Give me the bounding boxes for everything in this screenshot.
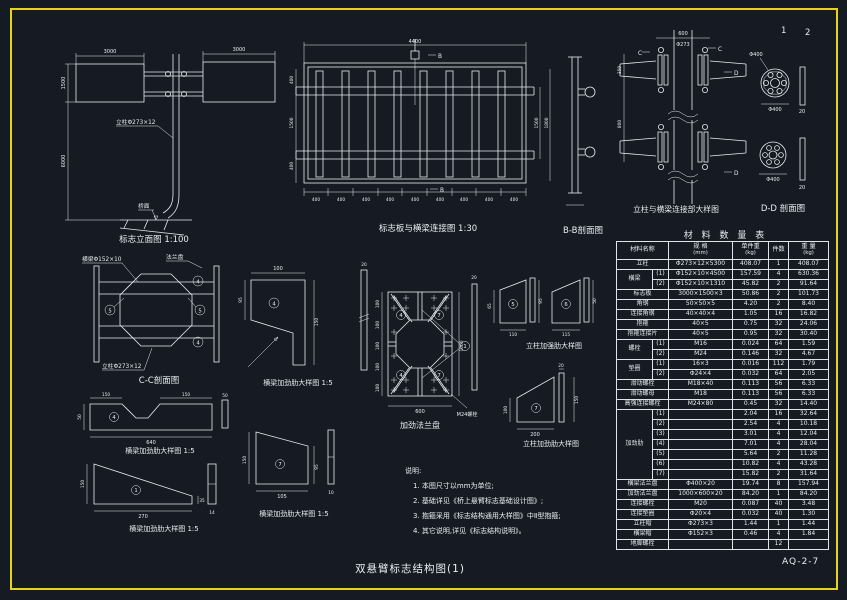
flange-plate-drawing: 20 4 7 4 7 1 10 bbox=[355, 258, 490, 433]
table-cell: 1000×600×20 bbox=[669, 490, 733, 500]
table-cell: 1.30 bbox=[789, 510, 829, 520]
table-row: 垫圈(1)16×30.0161121.79 bbox=[617, 360, 829, 370]
svg-text:150: 150 bbox=[314, 318, 320, 326]
table-cell: 157.94 bbox=[789, 480, 829, 490]
beam-rib-tri-caption: 横梁加劲肋大样图 1:5 bbox=[129, 524, 199, 533]
svg-text:600: 600 bbox=[678, 31, 688, 37]
svg-text:100: 100 bbox=[375, 384, 381, 392]
svg-text:Φ400: Φ400 bbox=[749, 52, 762, 58]
panel-beam-drawing: B B 4400 400 1500 400 1500 1800 400 400 … bbox=[288, 35, 558, 245]
svg-text:35: 35 bbox=[199, 498, 205, 504]
table-cell: 32.64 bbox=[789, 410, 829, 420]
table-cell: 630.36 bbox=[789, 270, 829, 280]
column-beam-section-marks: C C D D bbox=[638, 47, 739, 177]
flange-plate-caption: 加劲法兰盘 bbox=[400, 420, 440, 430]
table-cell: 2 bbox=[769, 470, 789, 480]
svg-text:20: 20 bbox=[799, 109, 805, 115]
table-cell: 12 bbox=[769, 540, 789, 550]
table-cell: 3.01 bbox=[733, 430, 769, 440]
table-row: 滑动螺母M180.113566.33 bbox=[617, 390, 829, 400]
section-cc-caption: C-C剖面图 bbox=[139, 375, 179, 386]
table-row: 横梁法兰盘Φ400×2019.748157.94 bbox=[617, 480, 829, 490]
elevation-dimensions: 3000 3000 1500 6000 bbox=[61, 47, 275, 220]
svg-text:20: 20 bbox=[558, 363, 564, 369]
bolt-label: M24螺栓 bbox=[457, 411, 478, 418]
table-cell: Φ152×10×1310 bbox=[669, 280, 733, 290]
table-cell: 40×5 bbox=[669, 320, 733, 330]
elevation-caption: 标志立面图 1:100 bbox=[119, 234, 189, 245]
table-cell: 6.33 bbox=[789, 380, 829, 390]
table-cell: 32 bbox=[769, 330, 789, 340]
svg-text:10: 10 bbox=[328, 490, 334, 496]
col-material-name: 材料名称 bbox=[617, 242, 669, 260]
elevation-drawing: 3000 3000 1500 6000 立柱Φ273×12 桥面 标志立面图 1… bbox=[58, 42, 293, 252]
svg-text:350: 350 bbox=[617, 66, 623, 74]
table-row: 连接角钢40×40×41.051616.82 bbox=[617, 310, 829, 320]
table-cell: 加劲法兰盘 bbox=[617, 490, 669, 500]
svg-text:Φ400: Φ400 bbox=[768, 107, 781, 113]
bridge-deck-label: 桥面 bbox=[138, 202, 150, 210]
svg-text:20: 20 bbox=[361, 262, 367, 268]
table-cell: 10.18 bbox=[789, 420, 829, 430]
table-cell bbox=[669, 450, 733, 460]
svg-text:400: 400 bbox=[289, 162, 295, 170]
dim-pole-height: 6000 bbox=[61, 155, 67, 168]
svg-text:50: 50 bbox=[592, 298, 598, 304]
beam-rib-trap-drawing: 7 10 150 95 105 横梁加劲肋大样图 1:5 bbox=[228, 424, 358, 524]
beam-rib-a-dimensions: 100 95 150 bbox=[238, 266, 320, 365]
table-cell: (1) bbox=[653, 340, 669, 350]
table-cell: 横梁帽 bbox=[617, 530, 669, 540]
notes-title: 说明: bbox=[405, 464, 600, 479]
table-cell: 0.95 bbox=[733, 330, 769, 340]
table-cell: 0.146 bbox=[733, 350, 769, 360]
table-cell: 立柱帽 bbox=[617, 520, 669, 530]
table-row: 角钢50×50×54.2028.40 bbox=[617, 300, 829, 310]
table-cell: 16×3 bbox=[669, 360, 733, 370]
svg-text:4: 4 bbox=[272, 301, 276, 307]
table-cell: 抱箍连接片 bbox=[617, 330, 669, 340]
col-unit-weight: 单件重(kg) bbox=[733, 242, 769, 260]
table-cell: 1.05 bbox=[733, 310, 769, 320]
table-row: 连接螺栓M200.087403.48 bbox=[617, 500, 829, 510]
beam-rib-notched-geometry: 4 50 bbox=[90, 393, 228, 430]
table-cell: 3000×1500×3 bbox=[669, 290, 733, 300]
table-cell: (1) bbox=[653, 410, 669, 420]
pole-spec-label: 立柱Φ273×12 bbox=[116, 118, 156, 126]
section-d-mark-upper: D bbox=[734, 71, 739, 77]
svg-text:5: 5 bbox=[511, 302, 514, 308]
svg-text:100: 100 bbox=[503, 406, 509, 414]
col-rib-geometry: 20 7 bbox=[517, 363, 564, 422]
table-cell: 连接垫圈 bbox=[617, 510, 669, 520]
table-cell: 12.04 bbox=[789, 430, 829, 440]
table-cell: 横梁法兰盘 bbox=[617, 480, 669, 490]
svg-text:50: 50 bbox=[77, 414, 83, 420]
panel-beam-dimensions: 4400 400 1500 400 1500 1800 400 400 400 … bbox=[289, 39, 550, 203]
table-cell: 4 bbox=[769, 440, 789, 450]
section-bb-drawing: B-B剖面图 bbox=[552, 45, 617, 245]
dim-panel-right: 3000 bbox=[233, 47, 246, 53]
svg-text:50: 50 bbox=[222, 393, 228, 399]
table-cell: (2) bbox=[653, 370, 669, 380]
svg-text:100: 100 bbox=[375, 363, 381, 371]
table-cell: 4 bbox=[769, 430, 789, 440]
svg-text:800: 800 bbox=[617, 120, 623, 128]
table-cell: 4.20 bbox=[733, 300, 769, 310]
svg-text:400: 400 bbox=[460, 197, 468, 203]
table-cell bbox=[669, 410, 733, 420]
svg-text:105: 105 bbox=[277, 494, 287, 500]
section-dd-caption: D-D 剖面图 bbox=[761, 203, 805, 214]
table-cell: 31.64 bbox=[789, 470, 829, 480]
table-cell: 50.86 bbox=[733, 290, 769, 300]
beam-rib-notched-dimensions: 150 150 50 640 bbox=[77, 392, 212, 446]
table-cell: (2) bbox=[653, 280, 669, 290]
table-cell: 45.82 bbox=[733, 280, 769, 290]
svg-text:1500: 1500 bbox=[289, 117, 295, 128]
table-cell: 立柱 bbox=[617, 260, 669, 270]
table-cell: 1 bbox=[769, 490, 789, 500]
table-cell: Φ400×20 bbox=[669, 480, 733, 490]
table-cell: 16 bbox=[769, 410, 789, 420]
section-b-mark-top: B bbox=[438, 54, 442, 60]
table-cell: 0.016 bbox=[733, 360, 769, 370]
table-cell bbox=[733, 540, 769, 550]
beam-rib-tri-dimensions: 150 270 35 bbox=[80, 464, 205, 520]
svg-text:20: 20 bbox=[471, 275, 477, 281]
table-row: 立柱Φ273×12×5300408.071408.07 bbox=[617, 260, 829, 270]
beam-rib-a-caption: 横梁加劲肋大样图 1:5 bbox=[263, 378, 333, 387]
table-cell: 84.20 bbox=[789, 490, 829, 500]
svg-text:4: 4 bbox=[399, 313, 403, 319]
table-row: 抱箍连接片40×50.953230.40 bbox=[617, 330, 829, 340]
svg-text:7: 7 bbox=[534, 406, 537, 412]
table-cell: 标志板 bbox=[617, 290, 669, 300]
table-row: 抱箍40×50.753224.06 bbox=[617, 320, 829, 330]
table-cell: 408.07 bbox=[733, 260, 769, 270]
table-cell bbox=[789, 540, 829, 550]
svg-text:95: 95 bbox=[538, 298, 544, 304]
table-cell: 2.54 bbox=[733, 420, 769, 430]
col-spec: 规 格(mm) bbox=[669, 242, 733, 260]
table-cell: 15.82 bbox=[733, 470, 769, 480]
svg-text:7: 7 bbox=[278, 462, 281, 468]
table-cell: 地脚螺栓 bbox=[617, 540, 669, 550]
beam-spec-label: 横梁Φ152×10 bbox=[82, 255, 122, 263]
section-dd-geometry bbox=[760, 67, 805, 180]
table-row: 横梁(1)Φ152×10×4500157.594630.36 bbox=[617, 270, 829, 280]
svg-text:1000: 1000 bbox=[459, 340, 465, 351]
table-cell: 14.40 bbox=[789, 400, 829, 410]
table-cell: 19.74 bbox=[733, 480, 769, 490]
table-cell: 垫圈 bbox=[617, 360, 653, 380]
table-row: 高强连接螺栓M24×800.453214.40 bbox=[617, 400, 829, 410]
table-row: 加劲肋(1)2.041632.64 bbox=[617, 410, 829, 420]
col-rib6-geometry: 6 50 115 bbox=[552, 278, 598, 338]
svg-text:5: 5 bbox=[198, 308, 201, 314]
svg-text:400: 400 bbox=[362, 197, 370, 203]
svg-text:400: 400 bbox=[386, 197, 394, 203]
table-cell: (1) bbox=[653, 270, 669, 280]
svg-text:110: 110 bbox=[509, 332, 517, 338]
table-cell: M20 bbox=[669, 500, 733, 510]
svg-text:1500: 1500 bbox=[534, 117, 540, 128]
table-cell: 32 bbox=[769, 320, 789, 330]
svg-text:400: 400 bbox=[411, 197, 419, 203]
table-cell: 2.05 bbox=[789, 370, 829, 380]
table-cell: 0.46 bbox=[733, 530, 769, 540]
table-row: 连接垫圈Φ20×40.032401.30 bbox=[617, 510, 829, 520]
table-cell: 4 bbox=[769, 270, 789, 280]
elevation-geometry bbox=[76, 54, 275, 235]
table-cell: Φ152×10×4500 bbox=[669, 270, 733, 280]
svg-text:Φ400: Φ400 bbox=[766, 177, 779, 183]
table-row: 标志板3000×1500×350.862101.73 bbox=[617, 290, 829, 300]
col-rib-dimensions: 100 200 150 bbox=[503, 377, 580, 438]
svg-text:115: 115 bbox=[562, 332, 570, 338]
table-cell: 2.04 bbox=[733, 410, 769, 420]
panel-beam-section-marks: B B bbox=[428, 54, 444, 194]
note-item-1: 1. 本图尺寸以mm为单位; bbox=[405, 479, 600, 494]
table-row: 立柱帽Φ273×31.4411.44 bbox=[617, 520, 829, 530]
table-cell: (3) bbox=[653, 430, 669, 440]
table-cell: 2 bbox=[769, 450, 789, 460]
table-cell: 5.64 bbox=[733, 450, 769, 460]
column-beam-caption: 立柱与横梁连接部大样图 bbox=[633, 204, 719, 214]
col-rib-drawing: 20 7 100 200 150 立柱加劲肋大样图 bbox=[492, 358, 622, 450]
table-cell: 112 bbox=[769, 360, 789, 370]
beam-rib-trap-caption: 横梁加劲肋大样图 1:5 bbox=[259, 509, 329, 518]
svg-text:7: 7 bbox=[437, 313, 440, 319]
table-cell: 408.07 bbox=[789, 260, 829, 270]
table-cell: 4 bbox=[769, 460, 789, 470]
table-cell: 16.82 bbox=[789, 310, 829, 320]
table-cell: 8 bbox=[769, 480, 789, 490]
svg-text:7: 7 bbox=[437, 373, 440, 379]
table-cell: 1.79 bbox=[789, 360, 829, 370]
table-cell: 56 bbox=[769, 390, 789, 400]
section-cc-drawing: 4 5 5 4 横梁Φ152×10 法兰盘 立柱Φ273×12 C-C剖面图 bbox=[80, 252, 240, 392]
dim-panel-left: 3000 bbox=[104, 49, 117, 55]
table-cell: (7) bbox=[653, 470, 669, 480]
table-cell: 32 bbox=[769, 350, 789, 360]
table-cell: 28.04 bbox=[789, 440, 829, 450]
col-rib-strong-caption: 立柱加强肋大样图 bbox=[526, 341, 582, 350]
table-cell: Φ20×4 bbox=[669, 510, 733, 520]
table-cell: 连接螺栓 bbox=[617, 500, 669, 510]
table-header-row: 材料名称 规 格(mm) 单件重(kg) 件数 重 量(kg) bbox=[617, 242, 829, 260]
svg-text:200: 200 bbox=[530, 432, 540, 438]
svg-text:4: 4 bbox=[112, 415, 116, 421]
table-cell: 连接角钢 bbox=[617, 310, 669, 320]
beam-rib-trap-geometry: 7 10 bbox=[256, 430, 334, 496]
svg-text:150: 150 bbox=[80, 480, 86, 488]
table-cell: 0.113 bbox=[733, 380, 769, 390]
table-cell: 50×50×5 bbox=[669, 300, 733, 310]
svg-text:400: 400 bbox=[436, 197, 444, 203]
table-cell: 84.20 bbox=[733, 490, 769, 500]
section-b-mark-bottom: B bbox=[440, 188, 444, 194]
svg-text:Φ273: Φ273 bbox=[676, 42, 689, 48]
column-beam-drawing: C C D D 600 Φ273 350 800 立柱与横梁连接部大样图 bbox=[612, 22, 752, 222]
table-cell: 32 bbox=[769, 400, 789, 410]
table-cell: M24×80 bbox=[669, 400, 733, 410]
table-cell: M18 bbox=[669, 390, 733, 400]
svg-text:4: 4 bbox=[196, 340, 200, 346]
svg-text:400: 400 bbox=[485, 197, 493, 203]
table-cell: M16 bbox=[669, 340, 733, 350]
notes-block: 说明: 1. 本图尺寸以mm为单位; 2. 基础详见《桥上悬臂标志基础设计图》;… bbox=[405, 464, 600, 539]
table-cell: 抱箍 bbox=[617, 320, 669, 330]
svg-text:20: 20 bbox=[799, 185, 805, 191]
table-cell: 64 bbox=[769, 370, 789, 380]
table-cell: 0.087 bbox=[733, 500, 769, 510]
table-cell: 16 bbox=[769, 310, 789, 320]
table-cell: (4) bbox=[653, 440, 669, 450]
svg-text:5: 5 bbox=[108, 308, 111, 314]
table-cell: 40×5 bbox=[669, 330, 733, 340]
table-cell: 0.75 bbox=[733, 320, 769, 330]
beam-rib-tri-geometry: 1 14 bbox=[94, 464, 216, 516]
table-row: 加劲法兰盘1000×600×2084.20184.20 bbox=[617, 490, 829, 500]
elevation-labels: 立柱Φ273×12 桥面 bbox=[116, 118, 173, 220]
table-cell: (5) bbox=[653, 450, 669, 460]
section-dd-drawing: Φ400 Φ400 Φ400 20 20 D-D 剖面图 bbox=[748, 28, 836, 223]
beam-rib-a-geometry: 4 bbox=[248, 280, 305, 367]
note-item-3: 3. 抱箍采用《标志结构通用大样图》中Ⅱ型抱箍; bbox=[405, 509, 600, 524]
section-dd-dimensions: Φ400 Φ400 Φ400 20 20 bbox=[749, 52, 805, 191]
table-cell: Φ273×12×5300 bbox=[669, 260, 733, 270]
pole-spec-label-cc: 立柱Φ273×12 bbox=[102, 362, 142, 370]
table-row: 螺栓(1)M160.024641.59 bbox=[617, 340, 829, 350]
svg-text:1800: 1800 bbox=[544, 117, 550, 128]
table-cell: 0.113 bbox=[733, 390, 769, 400]
table-cell: 加劲肋 bbox=[617, 410, 653, 480]
section-bb-caption: B-B剖面图 bbox=[563, 225, 603, 236]
svg-text:6: 6 bbox=[564, 302, 568, 308]
table-cell bbox=[669, 430, 733, 440]
dim-total-width: 4400 bbox=[409, 39, 422, 45]
table-cell: 30.40 bbox=[789, 330, 829, 340]
col-rib5-geometry: 5 65 95 110 bbox=[487, 278, 544, 338]
svg-text:14: 14 bbox=[209, 510, 215, 516]
col-quantity: 件数 bbox=[769, 242, 789, 260]
table-cell: 43.28 bbox=[789, 460, 829, 470]
table-cell: 8.40 bbox=[789, 300, 829, 310]
table-cell: 1.59 bbox=[789, 340, 829, 350]
table-cell: 1.84 bbox=[789, 530, 829, 540]
table-cell bbox=[669, 470, 733, 480]
cad-sheet: 1 2 3000 3000 1500 6000 bbox=[0, 0, 847, 600]
section-c-mark-right: C bbox=[718, 47, 722, 53]
table-row: 地脚螺栓12 bbox=[617, 540, 829, 550]
svg-text:150: 150 bbox=[574, 396, 580, 404]
table-cell: 64 bbox=[769, 340, 789, 350]
svg-text:95: 95 bbox=[238, 297, 244, 303]
table-cell: 6.33 bbox=[789, 390, 829, 400]
table-cell: (2) bbox=[653, 420, 669, 430]
flange-plate-dimensions: 100 100 100 100 100 600 1000 20 M24螺栓 bbox=[375, 275, 477, 418]
beam-rib-a-drawing: 4 100 95 150 横梁加劲肋大样图 1:5 bbox=[238, 255, 348, 395]
svg-text:400: 400 bbox=[289, 76, 295, 84]
table-cell: 0.032 bbox=[733, 510, 769, 520]
material-table-title: 材 料 数 量 表 bbox=[616, 228, 835, 241]
table-row: 横梁帽Φ152×30.4641.84 bbox=[617, 530, 829, 540]
section-c-mark-left: C bbox=[638, 51, 642, 57]
sheet-title: 双悬臂标志结构图(1) bbox=[300, 561, 520, 576]
table-cell: (2) bbox=[653, 350, 669, 360]
table-cell: 56 bbox=[769, 380, 789, 390]
table-cell: 101.73 bbox=[789, 290, 829, 300]
svg-text:400: 400 bbox=[510, 197, 518, 203]
table-cell: 1 bbox=[769, 260, 789, 270]
section-cc-labels: 横梁Φ152×10 法兰盘 立柱Φ273×12 bbox=[82, 253, 202, 370]
svg-text:150: 150 bbox=[242, 456, 248, 464]
note-item-4: 4. 其它说明,详见《标志结构说明》。 bbox=[405, 524, 600, 539]
table-cell: 1 bbox=[769, 520, 789, 530]
material-table-body: 立柱Φ273×12×5300408.071408.07横梁(1)Φ152×10×… bbox=[617, 260, 829, 550]
table-cell: 1.44 bbox=[789, 520, 829, 530]
table-cell: M24 bbox=[669, 350, 733, 360]
table-cell: M18×40 bbox=[669, 380, 733, 390]
section-bb-geometry bbox=[566, 57, 595, 205]
table-cell: 高强连接螺栓 bbox=[617, 400, 669, 410]
table-cell: 91.64 bbox=[789, 280, 829, 290]
table-cell bbox=[669, 420, 733, 430]
table-cell: 4 bbox=[769, 420, 789, 430]
table-cell: 4.67 bbox=[789, 350, 829, 360]
col-rib-caption: 立柱加劲肋大样图 bbox=[523, 439, 579, 448]
flange-plate-marks: 4 7 4 7 1 bbox=[397, 310, 470, 380]
table-cell bbox=[669, 540, 733, 550]
table-cell bbox=[669, 440, 733, 450]
svg-text:100: 100 bbox=[375, 342, 381, 350]
svg-text:270: 270 bbox=[138, 514, 148, 520]
svg-text:95: 95 bbox=[314, 464, 320, 470]
svg-text:400: 400 bbox=[312, 197, 320, 203]
col-total-weight: 重 量(kg) bbox=[789, 242, 829, 260]
table-cell: 0.032 bbox=[733, 370, 769, 380]
table-cell: (1) bbox=[653, 360, 669, 370]
drawing-number: AQ-2-7 bbox=[782, 557, 819, 567]
section-d-mark-lower: D bbox=[734, 171, 739, 177]
flange-label: 法兰盘 bbox=[166, 253, 184, 261]
table-cell: Φ273×3 bbox=[669, 520, 733, 530]
svg-text:100: 100 bbox=[375, 321, 381, 329]
table-row: 滑动螺栓M18×400.113566.33 bbox=[617, 380, 829, 390]
panel-beam-caption: 标志板与横梁连接图 1:30 bbox=[379, 223, 477, 234]
svg-text:1: 1 bbox=[134, 488, 137, 494]
col-rib-strong-drawing: 5 65 95 110 6 50 115 立柱加强肋大样图 bbox=[488, 268, 620, 353]
svg-text:640: 640 bbox=[146, 440, 156, 446]
table-cell: 横梁 bbox=[617, 270, 653, 290]
svg-text:150: 150 bbox=[182, 392, 190, 398]
table-cell: 4 bbox=[769, 530, 789, 540]
table-cell: 7.01 bbox=[733, 440, 769, 450]
table-cell: 11.28 bbox=[789, 450, 829, 460]
table-cell: 2 bbox=[769, 280, 789, 290]
material-table: 材料名称 规 格(mm) 单件重(kg) 件数 重 量(kg) 立柱Φ273×1… bbox=[616, 241, 829, 550]
table-cell: 157.59 bbox=[733, 270, 769, 280]
svg-text:4: 4 bbox=[399, 373, 403, 379]
svg-text:65: 65 bbox=[487, 303, 493, 309]
table-cell: 40 bbox=[769, 500, 789, 510]
table-cell: Φ24×4 bbox=[669, 370, 733, 380]
table-cell: 角钢 bbox=[617, 300, 669, 310]
note-item-2: 2. 基础详见《桥上悬臂标志基础设计图》; bbox=[405, 494, 600, 509]
table-cell: 滑动螺母 bbox=[617, 390, 669, 400]
